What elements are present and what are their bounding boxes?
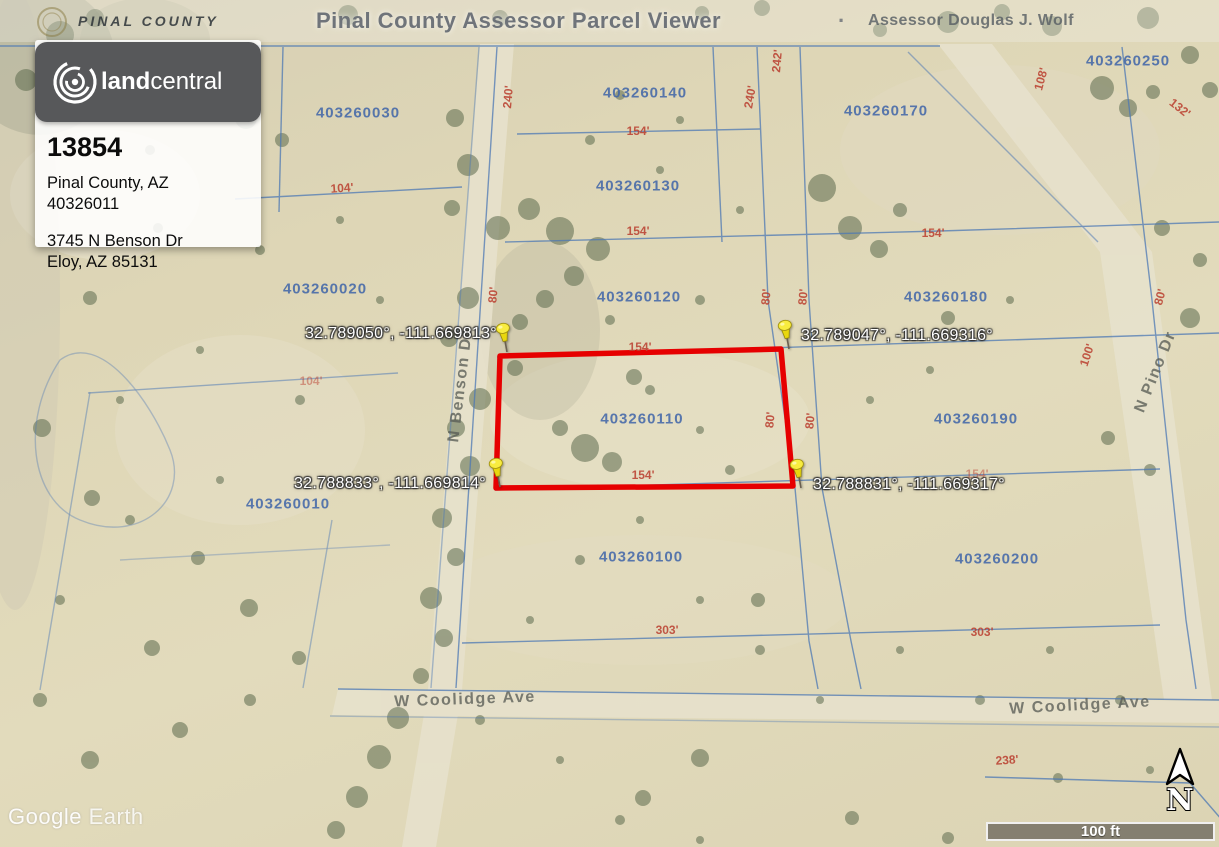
google-earth-watermark: Google Earth xyxy=(8,804,144,830)
banner-assessor-name: Assessor Douglas J. Wolf xyxy=(868,12,1074,30)
brand-bold: land xyxy=(101,68,150,95)
dimension-label: 80' xyxy=(758,288,773,305)
parcel-number-label: 403260120 xyxy=(597,289,681,306)
north-arrow-icon xyxy=(1167,749,1193,784)
street-name-label: W Coolidge Ave xyxy=(394,689,536,712)
map-pin[interactable] xyxy=(494,321,520,355)
pin-coordinate-label: 32.788833°, -111.669814° xyxy=(294,475,486,493)
dimension-label: 100' xyxy=(1077,342,1097,368)
listing-address-line1: 3745 N Benson Dr xyxy=(47,231,183,252)
dimension-label: 154' xyxy=(922,226,945,240)
parcel-number-label: 403260100 xyxy=(599,549,683,566)
map-viewport[interactable]: 4032600304032601404032602504032601704032… xyxy=(0,0,1219,847)
dimension-label: 154' xyxy=(629,340,652,354)
dimension-label: 303' xyxy=(656,623,679,637)
brand-light: central xyxy=(150,68,222,95)
north-arrow: N xyxy=(1158,746,1202,818)
dimension-label: 104' xyxy=(330,180,354,196)
dimension-label: 80' xyxy=(795,288,810,305)
dimension-label: 80' xyxy=(762,411,777,428)
parcel-number-label: 403260030 xyxy=(316,105,400,122)
parcel-number-label: 403260010 xyxy=(246,496,330,513)
parcel-number-label: 403260020 xyxy=(283,281,367,298)
banner-title: Pinal County Assessor Parcel Viewer xyxy=(316,8,721,34)
dimension-label: 80' xyxy=(1151,287,1169,306)
dimension-label: 104' xyxy=(300,374,323,388)
dimension-label: 108' xyxy=(1031,66,1050,92)
listing-id: 13854 xyxy=(47,132,183,163)
dimension-label: 154' xyxy=(632,468,655,482)
listing-details: 13854 Pinal County, AZ 40326011 3745 N B… xyxy=(35,122,195,273)
banner-separator: · xyxy=(838,8,845,34)
brand-header: landcentral xyxy=(35,42,261,122)
dimension-label: 80' xyxy=(802,412,817,429)
county-logo-text: PINAL COUNTY xyxy=(78,13,219,29)
parcel-number-label: 403260170 xyxy=(844,103,928,120)
street-name-label: N Pino Dr xyxy=(1131,329,1180,416)
dimension-label: 242' xyxy=(769,49,785,73)
watermark-earth: Earth xyxy=(89,804,144,829)
parcel-number-label: 403260180 xyxy=(904,289,988,306)
assessor-banner: PINAL COUNTY Pinal County Assessor Parce… xyxy=(0,0,1219,42)
parcel-number-label: 403260200 xyxy=(955,551,1039,568)
dimension-label: 132' xyxy=(1167,95,1194,120)
listing-address-line2: Eloy, AZ 85131 xyxy=(47,252,183,273)
parcel-number-label: 403260140 xyxy=(603,85,687,102)
dimension-label: 80' xyxy=(485,286,500,303)
dimension-label: 240' xyxy=(741,85,759,110)
pin-coordinate-label: 32.789050°, -111.669813° xyxy=(305,325,497,343)
dimension-label: 154' xyxy=(627,124,650,138)
dimension-label: 238' xyxy=(995,752,1019,768)
parcel-number-label: 403260250 xyxy=(1086,53,1170,70)
pin-coordinate-label: 32.789047°, -111.669316° xyxy=(801,327,993,345)
county-seal-icon xyxy=(34,4,70,40)
north-label: N xyxy=(1166,783,1193,818)
parcel-number-label: 403260130 xyxy=(596,178,680,195)
listing-parcel-number: 40326011 xyxy=(47,194,183,215)
watermark-google: Google xyxy=(8,804,82,829)
parcel-number-label: 403260190 xyxy=(934,411,1018,428)
landcentral-logo-icon xyxy=(49,56,101,108)
map-pin[interactable] xyxy=(487,456,513,490)
parcel-number-label: 403260110 xyxy=(600,411,683,428)
dimension-label: 303' xyxy=(971,625,994,639)
listing-location: Pinal County, AZ xyxy=(47,173,183,194)
brand-wordmark: landcentral xyxy=(101,68,222,96)
map-pin[interactable] xyxy=(788,457,814,491)
scale-label: 100 ft xyxy=(1081,823,1120,840)
dimension-label: 240' xyxy=(500,85,516,109)
street-name-label: W Coolidge Ave xyxy=(1009,693,1151,718)
scale-bar: 100 ft xyxy=(986,822,1215,841)
street-name-label: N Benson Dr xyxy=(445,329,477,444)
map-pin[interactable] xyxy=(776,318,802,352)
pin-coordinate-label: 32.788831°, -111.669317° xyxy=(813,476,1005,494)
dimension-label: 154' xyxy=(627,224,650,238)
listing-card: landcentral 13854 Pinal County, AZ 40326… xyxy=(35,40,261,247)
